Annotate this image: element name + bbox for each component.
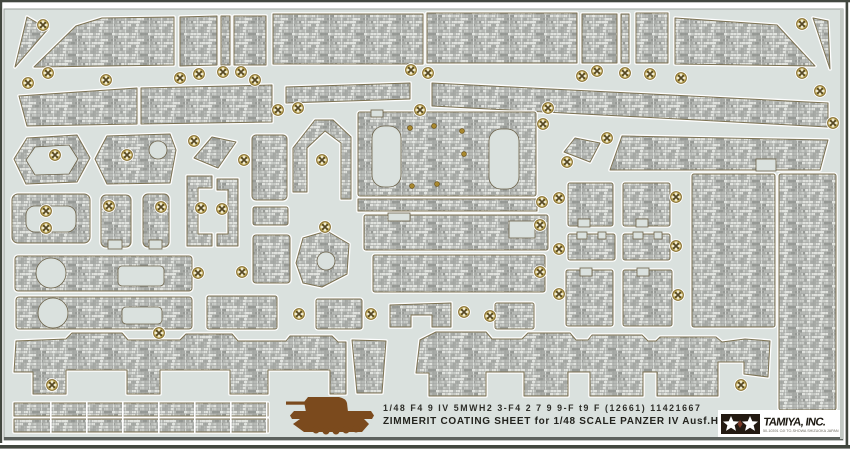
svg-text:TAMIYA, INC.: TAMIYA, INC. (763, 417, 827, 429)
svg-text:50-10391 OJI TO-SHOWA SHIZUOKA: 50-10391 OJI TO-SHOWA SHIZUOKA JAPAN (763, 429, 839, 433)
svg-text:ZIMMERIT COATING SHEET for 1/4: ZIMMERIT COATING SHEET for 1/48 SCALE PA… (383, 416, 718, 427)
